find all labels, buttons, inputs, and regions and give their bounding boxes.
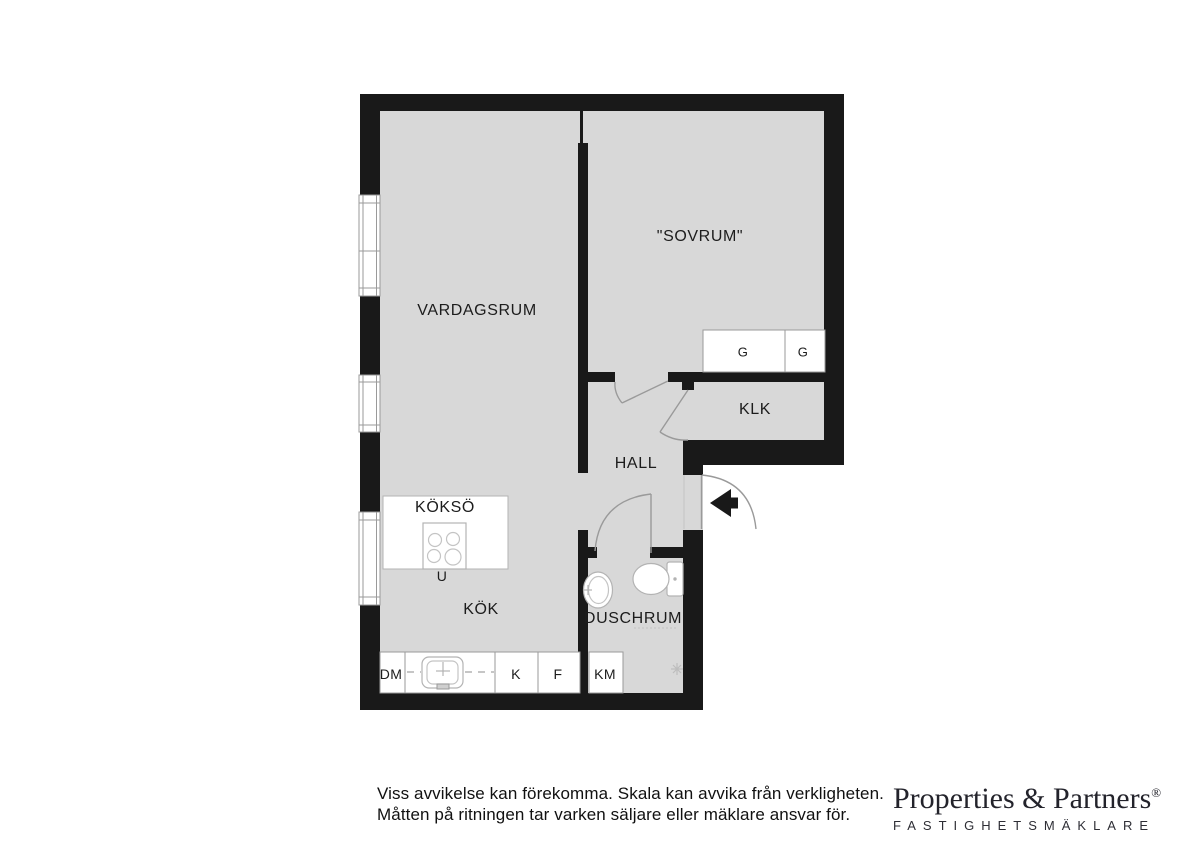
room-label-kokso: KÖKSÖ: [415, 499, 475, 517]
room-label-klk: KLK: [739, 401, 771, 419]
agency-logo-tagline: FASTIGHETSMÄKLARE: [893, 818, 1161, 833]
room-label-sovrum: "SOVRUM": [657, 228, 743, 246]
windows: [359, 195, 380, 605]
room-label-duschrum: DUSCHRUM: [584, 610, 682, 628]
agency-logo-name: Properties & Partners®: [893, 783, 1161, 815]
fixture-label-fridge: K: [511, 666, 521, 682]
stove-icon: [423, 523, 466, 569]
room-label-vardagsrum: VARDAGSRUM: [417, 302, 537, 320]
floorplan-drawing: [0, 0, 1200, 848]
window-icon: [359, 195, 380, 296]
agency-logo: Properties & Partners® FASTIGHETSMÄKLARE: [893, 783, 1161, 833]
disclaimer-text: Viss avvikelse kan förekomma. Skala kan …: [377, 784, 884, 825]
fixture-label-wardrobe-2: G: [798, 345, 808, 360]
disclaimer-line-2: Måtten på ritningen tar varken säljare e…: [377, 805, 884, 826]
fixture-label-washer: KM: [594, 666, 616, 682]
fixture-label-dishwasher: DM: [380, 666, 403, 682]
fixture-label-oven: U: [437, 568, 448, 584]
entry-arrow-icon: [710, 489, 738, 517]
fixture-label-wardrobe-1: G: [738, 345, 748, 360]
toilet-icon: [633, 562, 683, 596]
disclaimer-line-1: Viss avvikelse kan förekomma. Skala kan …: [377, 784, 884, 805]
fixture-label-freezer: F: [554, 666, 563, 682]
window-icon: [359, 375, 380, 432]
floorplan-page: VARDAGSRUM "SOVRUM" KLK HALL KÖKSÖ KÖK D…: [0, 0, 1200, 848]
bathroom-sink-icon: [584, 572, 613, 608]
room-label-hall: HALL: [615, 455, 657, 473]
room-label-kok: KÖK: [463, 601, 499, 619]
window-icon: [359, 512, 380, 605]
kitchen-sink-icon: [422, 657, 463, 689]
agency-logo-name-text: Properties & Partners: [893, 782, 1151, 815]
registered-trademark-icon: ®: [1151, 785, 1161, 800]
